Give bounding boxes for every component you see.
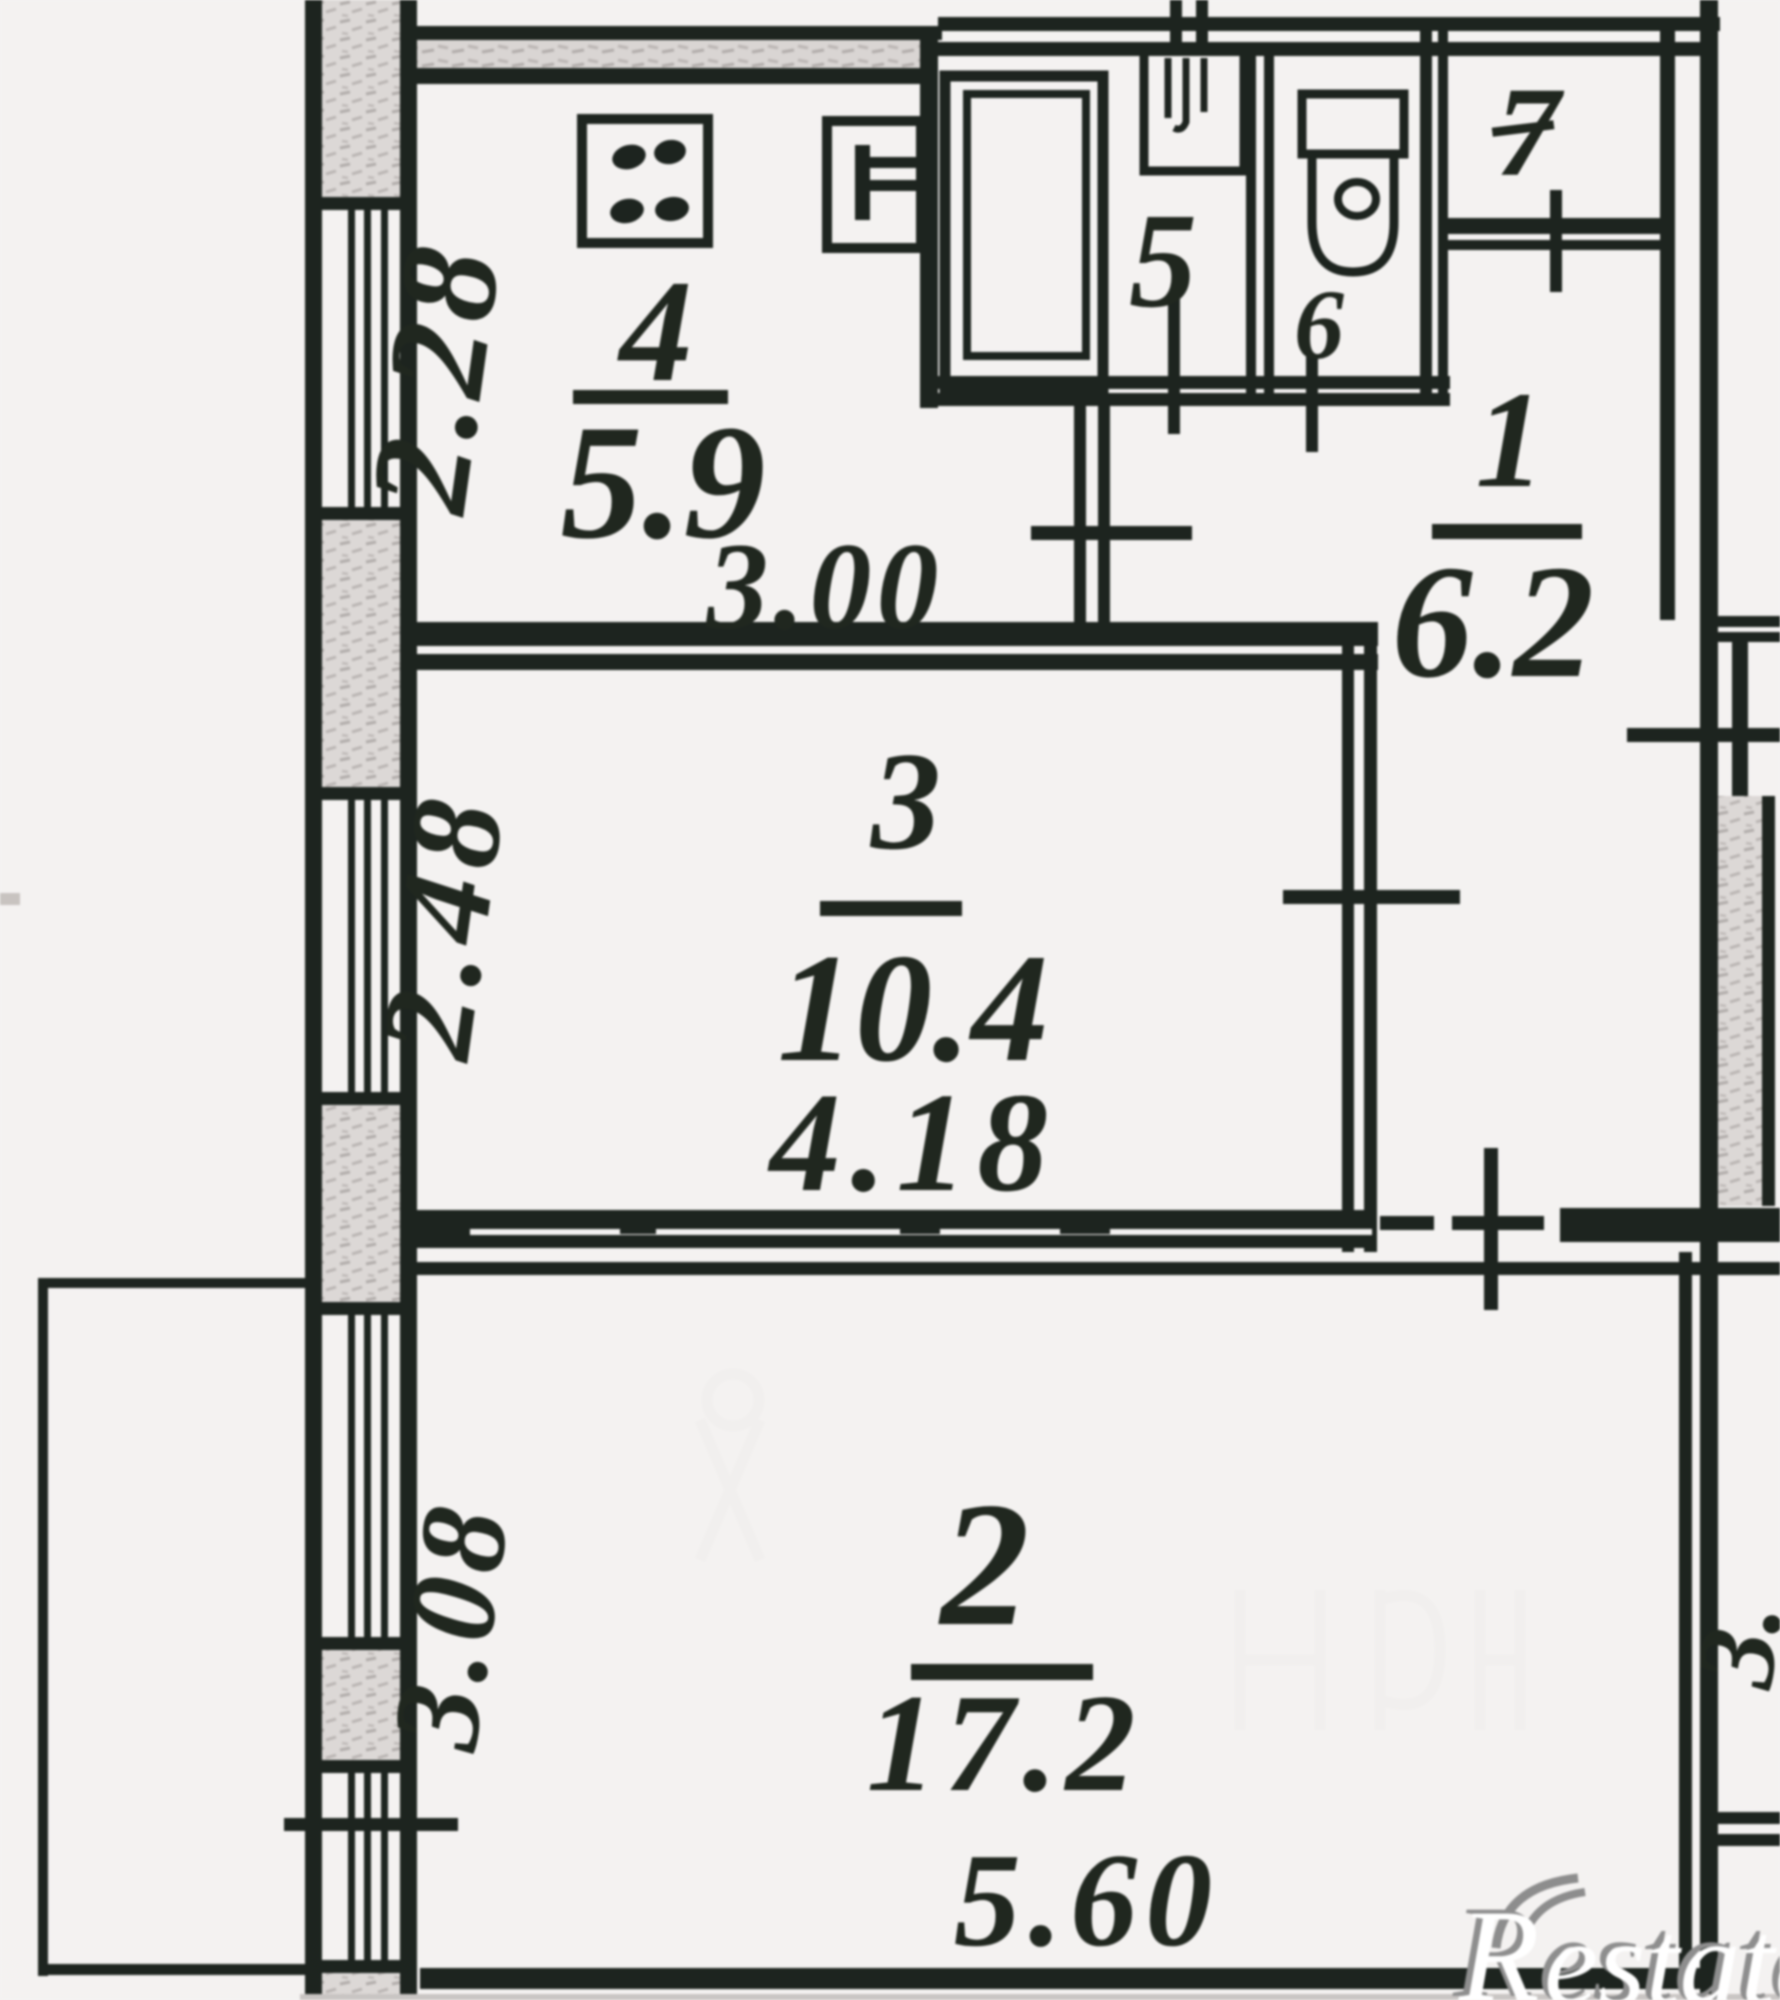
svg-text:17.2: 17.2: [867, 1666, 1144, 1821]
svg-text:3.00: 3.00: [706, 518, 944, 655]
svg-text:estate: estate: [1544, 1896, 1780, 2000]
svg-text:5.60: 5.60: [954, 1826, 1221, 1974]
svg-text:4: 4: [617, 250, 693, 412]
svg-text:R: R: [1458, 1882, 1540, 2000]
svg-text:2: 2: [938, 1465, 1030, 1663]
svg-text:4.18: 4.18: [767, 1063, 1059, 1221]
svg-text:6.2: 6.2: [1392, 533, 1595, 712]
svg-text:5: 5: [1129, 186, 1197, 336]
svg-text:1: 1: [1476, 363, 1545, 516]
svg-text:3: 3: [869, 724, 941, 879]
svg-text:3.: 3.: [1672, 1594, 1780, 1695]
svg-text:6: 6: [1294, 269, 1344, 380]
